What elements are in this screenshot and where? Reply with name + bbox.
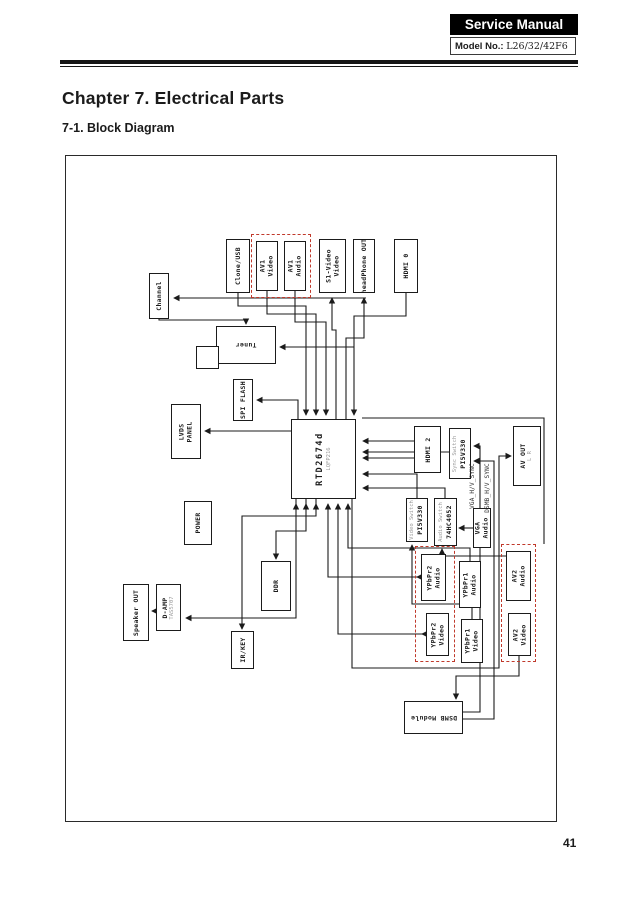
block-tuner: Tuner xyxy=(216,326,276,364)
block-hdmi2: HDMI 2 xyxy=(414,426,441,473)
block-spi-flash: SPI FLASH xyxy=(233,379,253,421)
service-manual-banner: Service Manual xyxy=(450,14,578,35)
block-speaker-out: Speaker OUT xyxy=(123,584,149,641)
block-main-chip: RTD2674dLQFP216 xyxy=(291,419,356,499)
label-vga-sync: VGA_H/V_SYNC xyxy=(466,436,480,536)
block-av-out: AV OUTL R xyxy=(513,426,541,486)
block-diagram-canvas: Clone/USBAV1 VideoAV1 AudioS1-Video Vide… xyxy=(65,155,557,822)
block-ypbpr2-video: YPbPr2 Video xyxy=(426,613,449,656)
block-tuner-tab xyxy=(196,346,219,369)
block-audio-switch: Audio Switch74HC4052 xyxy=(434,498,457,546)
block-headphone-out: headPhone OUT xyxy=(353,239,375,293)
block-av1-audio: AV1 Audio xyxy=(284,241,306,291)
block-lvds-panel: LVDS PANEL xyxy=(171,404,201,459)
block-hdmi0: HDMI 0 xyxy=(394,239,418,293)
block-clone-usb: Clone/USB xyxy=(226,239,250,293)
label-dsmb-sync: DSMB_H/V_SYNC xyxy=(481,434,495,542)
header-rule-thick xyxy=(60,60,578,64)
header-rule-thin xyxy=(60,66,578,67)
block-d-amp: D-AMPTAS5707 xyxy=(156,584,181,631)
manual-page: Service Manual Model No.: L26/32/42F6 Ch… xyxy=(0,0,638,903)
page-number: 41 xyxy=(563,836,576,850)
model-number-box: Model No.: L26/32/42F6 xyxy=(450,37,576,55)
model-label: Model No.: xyxy=(455,41,504,52)
block-ypbpr2-audio: YPbPr2 Audio xyxy=(421,554,446,601)
block-power: POWER xyxy=(184,501,212,545)
block-ir-key: IR/KEY xyxy=(231,631,254,669)
block-dsmb-module: DSMB Module xyxy=(404,701,463,734)
block-av2-video: AV2 Video xyxy=(508,613,531,656)
block-ddr: DDR xyxy=(261,561,291,611)
block-av1-video: AV1 Video xyxy=(256,241,278,291)
block-s1-video: S1-Video Video xyxy=(319,239,346,293)
model-value: L26/32/42F6 xyxy=(506,41,568,52)
block-channel: Channel xyxy=(149,273,169,319)
block-ypbpr1-video: YPbPr1 Video xyxy=(461,619,483,663)
section-title: 7-1. Block Diagram xyxy=(62,121,175,135)
block-av2-audio: AV2 Audio xyxy=(506,551,531,601)
block-ypbpr1-audio: YPbPr1 Audio xyxy=(459,561,481,608)
block-video-switch: Video SwitchPI5V330 xyxy=(406,498,428,542)
chapter-title: Chapter 7. Electrical Parts xyxy=(62,88,284,109)
